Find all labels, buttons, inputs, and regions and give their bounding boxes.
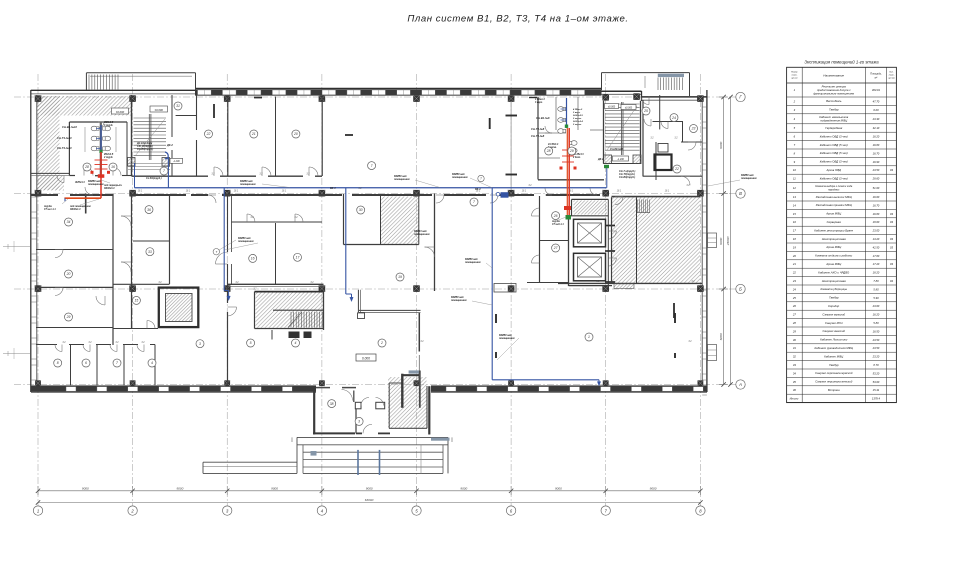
svg-text:Кабинет руководителя МФЦ: Кабинет руководителя МФЦ (814, 346, 853, 350)
svg-text:Распайочная приемки МФЦ: Распайочная приемки МФЦ (816, 203, 852, 207)
svg-text:4: 4 (295, 341, 297, 345)
svg-text:16.1: 16.1 (234, 191, 239, 193)
svg-text:18.60: 18.60 (873, 220, 880, 224)
svg-text:6000: 6000 (719, 333, 723, 340)
svg-text:32.10: 32.10 (873, 126, 880, 130)
svg-text:17: 17 (793, 229, 796, 233)
svg-text:19: 19 (398, 275, 402, 279)
svg-text:9000: 9000 (271, 486, 278, 490)
svg-text:21: 21 (251, 132, 256, 136)
svg-text:помещением: помещением (414, 233, 430, 236)
svg-text:3Ø16х3.4: 3Ø16х3.4 (104, 187, 115, 190)
svg-text:±0.000: ±0.000 (608, 105, 616, 108)
svg-text:Архив МФЦ: Архив МФЦ (825, 245, 841, 249)
svg-text:22: 22 (206, 132, 211, 136)
svg-text:53.00: 53.00 (873, 380, 880, 384)
svg-text:ДК-2: ДК-2 (166, 143, 173, 147)
svg-text:23.30: 23.30 (872, 117, 880, 121)
svg-text:помещением: помещением (240, 183, 256, 186)
svg-text:0.000: 0.000 (362, 356, 370, 360)
svg-text:17: 17 (296, 256, 300, 260)
svg-text:12: 12 (793, 186, 796, 190)
svg-text:31: 31 (176, 104, 180, 108)
svg-text:15: 15 (135, 299, 139, 303)
svg-text:22: 22 (674, 167, 679, 171)
svg-text:6000: 6000 (719, 238, 723, 245)
svg-text:16.60: 16.60 (873, 195, 880, 199)
svg-text:Т: Т (215, 250, 217, 254)
svg-text:6: 6 (85, 361, 87, 365)
svg-text:помещением: помещением (465, 261, 481, 264)
svg-text:3Ø16х1.4: 3Ø16х1.4 (70, 208, 81, 211)
svg-text:9000: 9000 (555, 486, 562, 490)
svg-text:9000: 9000 (82, 486, 89, 490)
svg-text:подразделения МФЦ: подразделения МФЦ (820, 119, 847, 123)
svg-text:16.80: 16.80 (873, 143, 880, 147)
svg-text:помещением: помещением (88, 183, 104, 186)
svg-text:Ст.Т4-№8: Ст.Т4-№8 (531, 134, 545, 138)
svg-text:16.1: 16.1 (138, 191, 143, 193)
svg-text:Кабинет ОВД (3 чел): Кабинет ОВД (3 чел) (820, 176, 848, 180)
svg-text:ДК-2: ДК-2 (597, 158, 604, 161)
svg-text:Вестибюль: Вестибюль (826, 99, 842, 103)
svg-text:10: 10 (793, 168, 796, 172)
svg-text:Комната уборщицы: Комната уборщицы (820, 287, 847, 291)
svg-text:Кабинет МФЦ: Кабинет МФЦ (824, 354, 843, 358)
svg-text:Санузел МГН: Санузел МГН (825, 321, 843, 325)
svg-text:4 РЕал.3: 4 РЕал.3 (572, 108, 583, 111)
svg-text:28.60: 28.60 (872, 177, 880, 181)
svg-text:Ст.Т3-№10: Ст.Т3-№10 (57, 136, 72, 140)
svg-text:24: 24 (671, 116, 676, 120)
svg-text:3 верх.: 3 верх. (535, 102, 543, 104)
svg-text:33: 33 (148, 250, 152, 254)
svg-text:20: 20 (293, 132, 298, 136)
svg-text:35: 35 (793, 380, 796, 384)
svg-text:ВК-4: ВК-4 (330, 187, 336, 190)
svg-text:34: 34 (793, 371, 796, 375)
svg-text:Кабинет ОВД (3 чел): Кабинет ОВД (3 чел) (820, 134, 848, 138)
svg-text:17.80: 17.80 (873, 254, 880, 258)
svg-text:3 перех.: 3 перех. (573, 118, 582, 120)
svg-text:16.20: 16.20 (873, 313, 880, 317)
svg-text:24.35х3.4: 24.35х3.4 (547, 143, 559, 146)
svg-text:5: 5 (250, 341, 252, 345)
svg-text:28: 28 (792, 321, 796, 325)
svg-text:Кабинет АХО и ЧРДВО: Кабинет АХО и ЧРДВО (818, 270, 850, 274)
svg-text:Распайочная выписки МФЦ: Распайочная выписки МФЦ (816, 195, 852, 199)
svg-text:Кабинет ОВД (3 чел): Кабинет ОВД (3 чел) (820, 160, 848, 164)
svg-text:Кол.: Кол. (889, 72, 894, 74)
svg-text:23: 23 (792, 279, 796, 283)
svg-text:38: 38 (330, 402, 334, 406)
svg-text:26: 26 (553, 214, 558, 218)
svg-text:Комната отдыха и работы: Комната отдыха и работы (815, 254, 852, 258)
svg-text:24000: 24000 (726, 236, 730, 246)
svg-text:помещением: помещением (499, 337, 515, 340)
svg-text:8.70: 8.70 (873, 363, 879, 367)
svg-text:9000: 9000 (460, 486, 467, 490)
svg-text:Санузел персонала женский: Санузел персонала женский (815, 380, 853, 384)
svg-text:1378.4: 1378.4 (872, 397, 881, 401)
svg-text:Гардеробная: Гардеробная (825, 126, 842, 130)
svg-text:20: 20 (792, 254, 796, 258)
svg-text:03: 03 (890, 220, 893, 224)
svg-text:5.80: 5.80 (873, 321, 879, 325)
svg-text:План систем В1, В2, Т3, Т4 на: План систем В1, В2, Т3, Т4 на 1–ом этаже… (407, 14, 628, 25)
svg-text:42.50: 42.50 (873, 245, 880, 249)
svg-text:51.00: 51.00 (873, 186, 880, 190)
svg-text:±0.000: ±0.000 (625, 106, 633, 109)
svg-text:В: В (739, 191, 742, 196)
svg-text:34.35х3.4: 34.35х3.4 (573, 120, 584, 123)
svg-text:8: 8 (57, 361, 59, 365)
svg-text:Тамбур: Тамбур (829, 296, 839, 300)
svg-text:Архив МФЦ: Архив МФЦ (825, 262, 841, 266)
svg-text:31: 31 (793, 346, 796, 350)
svg-text:2: 2 (380, 341, 383, 345)
svg-text:23.50: 23.50 (872, 168, 880, 172)
svg-text:36: 36 (147, 208, 151, 212)
svg-text:Ж25х3.4: Ж25х3.4 (74, 181, 85, 184)
svg-text:помещением: помещением (238, 240, 254, 243)
svg-text:Номер: Номер (791, 72, 798, 74)
svg-text:м²: м² (875, 77, 878, 80)
svg-text:03: 03 (890, 262, 893, 266)
svg-text:помещением: помещением (452, 176, 468, 179)
svg-text:16: 16 (111, 165, 115, 169)
svg-text:Ст.В0(труб.): Ст.В0(труб.) (137, 148, 153, 151)
svg-text:щения: щения (791, 78, 798, 80)
svg-text:03: 03 (890, 237, 893, 241)
svg-text:16.1: 16.1 (186, 191, 191, 193)
svg-text:Коридор: Коридор (828, 304, 839, 308)
svg-text:3: 3 (358, 420, 360, 424)
svg-text:Кабинет ОВД (5 чел): Кабинет ОВД (5 чел) (820, 151, 848, 155)
svg-text:15: 15 (793, 212, 796, 216)
svg-text:28: 28 (84, 165, 89, 169)
svg-text:53.20: 53.20 (873, 371, 880, 375)
svg-text:18: 18 (793, 237, 796, 241)
svg-text:Кабинет регистрации Бранч: Кабинет регистрации Бранч (814, 228, 853, 232)
svg-text:23.50: 23.50 (872, 346, 880, 350)
svg-text:1: 1 (588, 335, 590, 339)
svg-text:3Т №1-1.1: 3Т №1-1.1 (44, 208, 56, 211)
svg-text:2 бокс.: 2 бокс. (572, 156, 581, 159)
svg-text:Площадь,: Площадь, (870, 73, 882, 76)
svg-text:Кабинет ОВД (5 чел): Кабинет ОВД (5 чел) (820, 143, 848, 147)
svg-text:-1.200: -1.200 (173, 160, 180, 163)
svg-text:23: 23 (691, 127, 696, 131)
svg-text:Архив ОВД: Архив ОВД (826, 168, 841, 172)
svg-text:Серверная: Серверная (827, 220, 842, 224)
svg-text:15.41: 15.41 (873, 388, 880, 392)
svg-text:Наименование: Наименование (823, 74, 844, 78)
svg-text:32: 32 (793, 355, 796, 359)
svg-text:21: 21 (792, 262, 796, 266)
svg-text:поме-: поме- (889, 75, 895, 77)
svg-text:29: 29 (569, 149, 574, 153)
svg-text:помещением: помещением (741, 177, 757, 180)
svg-text:19: 19 (793, 245, 796, 249)
svg-text:16.1: 16.1 (617, 191, 622, 193)
svg-text:9000: 9000 (366, 486, 373, 490)
svg-text:2 труб.: 2 труб. (103, 156, 113, 159)
svg-text:29: 29 (792, 329, 796, 333)
svg-text:34: 34 (67, 220, 71, 224)
svg-text:04: 04 (890, 279, 893, 283)
svg-text:функциональным помещением: функциональным помещением (813, 91, 854, 95)
svg-text:7: 7 (371, 164, 373, 168)
svg-text:28: 28 (546, 149, 551, 153)
svg-text:16.50: 16.50 (873, 329, 880, 333)
svg-text:А: А (738, 382, 742, 387)
svg-text:7: 7 (163, 169, 165, 173)
svg-text:18.20: 18.20 (873, 271, 880, 275)
svg-text:22: 22 (792, 271, 796, 275)
svg-text:Санузел мужской: Санузел мужской (822, 312, 845, 316)
svg-text:16.70: 16.70 (873, 203, 880, 207)
svg-text:6000: 6000 (719, 142, 723, 149)
svg-text:Кабинет Логистики: Кабинет Логистики (820, 338, 848, 342)
svg-text:16.1: 16.1 (665, 191, 670, 193)
svg-text:36: 36 (793, 388, 796, 392)
svg-text:Ст.Т3-№8: Ст.Т3-№8 (531, 127, 545, 131)
svg-text:23.60: 23.60 (872, 304, 880, 308)
svg-text:Электрощитовая: Электрощитовая (822, 279, 847, 283)
svg-text:16.20: 16.20 (873, 135, 880, 139)
svg-text:03: 03 (890, 212, 893, 216)
svg-text:помещением: помещением (394, 178, 410, 181)
svg-text:47.70: 47.70 (873, 99, 880, 103)
svg-text:Сл.В1(труб.): Сл.В1(труб.) (146, 177, 162, 180)
svg-text:13.20: 13.20 (873, 237, 880, 241)
svg-text:Тамбур: Тамбур (829, 363, 839, 367)
svg-text:Электрощитовая: Электрощитовая (822, 237, 847, 241)
svg-text:29: 29 (66, 315, 71, 319)
svg-text:Ст.В1-№10: Ст.В1-№10 (62, 125, 77, 129)
svg-text:14: 14 (793, 203, 796, 207)
svg-text:4: 4 (151, 361, 153, 365)
svg-text:27: 27 (553, 246, 558, 250)
svg-text:25: 25 (643, 109, 648, 113)
svg-text:5.90: 5.90 (873, 296, 879, 300)
svg-text:16: 16 (251, 257, 255, 261)
svg-text:народных: народных (828, 188, 840, 191)
svg-text:9000: 9000 (176, 486, 183, 490)
svg-text:16.1: 16.1 (569, 191, 574, 193)
svg-text:7: 7 (473, 200, 475, 204)
svg-text:17.20: 17.20 (873, 262, 880, 266)
svg-text:11: 11 (793, 177, 796, 181)
svg-text:27: 27 (792, 313, 796, 317)
svg-text:16.1: 16.1 (476, 191, 481, 193)
svg-text:6.00: 6.00 (873, 108, 879, 112)
svg-text:Ст.В1-№8: Ст.В1-№8 (536, 116, 550, 120)
svg-text:16.90: 16.90 (873, 160, 880, 164)
svg-text:63000: 63000 (365, 498, 374, 502)
svg-text:5.80: 5.80 (873, 287, 879, 291)
svg-text:1: 1 (37, 508, 39, 513)
svg-text:Ст.В0(труб.): Ст.В0(труб.) (619, 176, 635, 179)
svg-text:33: 33 (793, 363, 796, 367)
svg-text:9000: 9000 (650, 486, 657, 490)
svg-text:03: 03 (890, 245, 893, 249)
svg-text:30: 30 (793, 338, 796, 342)
svg-text:помещением: помещением (451, 299, 467, 302)
svg-text:7: 7 (116, 361, 118, 365)
svg-text:3 верх.: 3 верх. (573, 112, 581, 114)
svg-text:24: 24 (792, 287, 796, 291)
svg-text:4 РЕал.3: 4 РЕал.3 (534, 98, 545, 101)
svg-text:23.20: 23.20 (872, 355, 880, 359)
svg-text:поме-: поме- (792, 75, 798, 77)
svg-text:16.1: 16.1 (522, 191, 527, 193)
svg-text:26: 26 (792, 304, 796, 308)
svg-text:3Т №8-1.1: 3Т №8-1.1 (552, 223, 564, 226)
svg-text:Встроен: Встроен (828, 388, 840, 392)
svg-text:303.91: 303.91 (872, 88, 881, 92)
svg-text:16.1: 16.1 (282, 191, 287, 193)
svg-text:Санузел персонала мужской: Санузел персонала мужской (815, 371, 853, 375)
svg-text:-1.200: -1.200 (617, 158, 624, 161)
svg-text:20: 20 (66, 272, 71, 276)
svg-text:3: 3 (199, 342, 201, 346)
svg-text:23.50: 23.50 (872, 338, 880, 342)
svg-text:23.00: 23.00 (872, 229, 880, 233)
svg-text:±0.000: ±0.000 (116, 110, 125, 114)
svg-text:3 труб.: 3 труб. (104, 124, 113, 127)
svg-text:Б: Б (739, 287, 742, 292)
svg-text:03: 03 (890, 168, 893, 172)
svg-text:Ст.Т4-№10: Ст.Т4-№10 (57, 146, 72, 150)
svg-text:16: 16 (793, 220, 796, 224)
svg-text:16.80: 16.80 (873, 212, 880, 216)
svg-text:Архив МФЦ: Архив МФЦ (825, 212, 841, 216)
svg-text:25: 25 (792, 296, 796, 300)
svg-text:±0.000: ±0.000 (155, 108, 164, 112)
svg-text:Сп.80-№8: Сп.80-№8 (610, 147, 623, 151)
svg-text:Т: Т (480, 177, 482, 181)
svg-text:34.25х3.5: 34.25х3.5 (573, 114, 584, 117)
svg-text:16.70: 16.70 (873, 151, 880, 155)
svg-text:Тамбур: Тамбур (829, 108, 839, 112)
svg-text:Итого: Итого (790, 397, 799, 401)
svg-text:7.80: 7.80 (873, 279, 879, 283)
svg-text:13: 13 (793, 195, 796, 199)
svg-text:3 перех.: 3 перех. (573, 124, 582, 126)
svg-text:Экспликация помещений 1-го эта: Экспликация помещений 1-го этажа (804, 59, 879, 64)
svg-text:щений: щений (888, 77, 895, 80)
svg-text:30: 30 (359, 208, 363, 212)
svg-text:Санузел женский: Санузел женский (823, 329, 846, 333)
